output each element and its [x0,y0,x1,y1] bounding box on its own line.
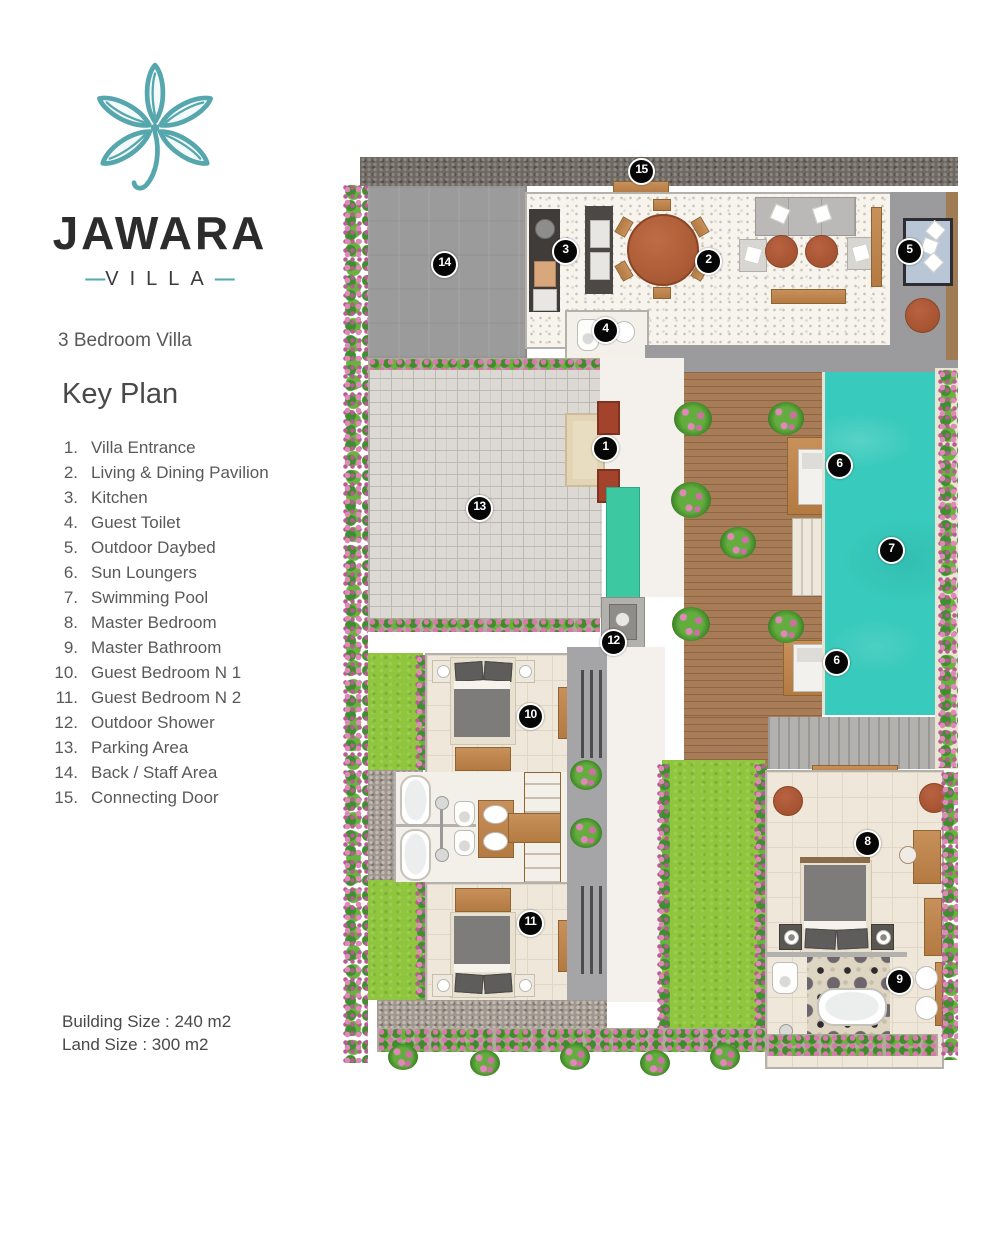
flower-bush [640,1050,670,1076]
washbasin [483,832,508,851]
pool-steps [792,518,822,596]
kitchen-counter [529,209,560,312]
bathtub [400,829,431,881]
master-bed [800,860,872,954]
nightstand [432,974,453,997]
guest-bedroom-2 [425,882,571,1004]
bed [450,912,516,998]
swimming-pool [822,372,940,715]
master-bathtub [817,988,887,1026]
lamp-icon [437,665,450,678]
master-suite [765,770,944,1069]
bed-duvet [804,865,866,921]
dining-chair [653,199,671,211]
nightstand [514,660,535,683]
round-table [773,786,803,816]
bed-duvet [454,689,510,737]
flower-bush [768,402,804,435]
parking-top-hedge [368,358,600,370]
bed-pillow [454,973,483,994]
shower-head-icon [435,848,449,862]
shower-head-icon [615,612,630,627]
nightstand [871,924,894,950]
bed [450,657,516,745]
sofa [755,197,856,236]
privacy-screen [581,886,603,974]
bed-sheet [454,964,510,972]
pergola-walkway [768,717,940,769]
coffee-table [805,235,838,268]
cutting-board [534,261,556,287]
bed-foot-rail [800,857,870,863]
flower-bush [710,1044,740,1070]
armchair-pillow [851,243,871,263]
lawn-border [656,762,670,1038]
flower-bush [570,760,602,790]
flower-bush [470,1050,500,1076]
privacy-screen [581,670,603,758]
staff-area [368,186,527,358]
lamp-icon [519,979,532,992]
water-feature [606,487,640,599]
flower-bush [674,402,712,436]
toilet [577,319,599,351]
flower-bush [671,482,711,518]
pool-garden-border [937,368,958,768]
floor-plan: 1234566789101112131415 [0,0,998,1250]
armchair-pillow [743,245,763,265]
flower-bush [570,818,602,848]
daybed-terrace [890,192,958,360]
right-garden-border [940,770,958,1060]
guest-toilet-room [565,310,649,362]
kitchen-sink [533,289,557,311]
bed-pillow [483,661,512,682]
guest-bedroom-1 [425,653,571,776]
dining-table [627,214,699,286]
armchair [739,239,767,272]
desk [913,830,941,884]
nightstand [514,974,535,997]
desk-chair [899,846,917,864]
washbasin [483,805,508,824]
central-lawn [662,760,765,1040]
sofa-pillow [812,204,832,224]
dining-chair [653,287,671,299]
nightstand [779,924,802,950]
toilet [772,962,798,994]
flower-bush [768,610,804,643]
island-panel [590,220,610,248]
flower-bush [672,607,710,641]
side-table [905,298,940,333]
entrance-gate-post [597,401,620,435]
bench [771,289,846,304]
outdoor-daybed [903,218,953,286]
bed-pillow [804,928,836,950]
parking-area [368,370,602,618]
sofa-pillow [769,203,790,224]
flower-bush [720,527,756,559]
bed-bench [455,747,511,771]
bed-sheet [454,681,510,689]
washbasin [915,996,938,1020]
bed-bench [455,888,511,912]
bed-pillow [454,661,483,682]
lamp-icon [519,665,532,678]
shower-head-icon [435,796,449,810]
flower-bush [388,1044,418,1070]
guest-bathrooms [394,772,569,882]
coffee-table [765,235,798,268]
pavilion-door [871,207,882,287]
washbasin [915,966,938,990]
bed-pillow [836,928,868,950]
outdoor-shower [601,597,645,649]
toilet [454,830,475,856]
toilet [454,801,475,827]
washbasin [613,321,635,343]
bed-duvet [454,916,510,964]
lamp-icon [437,979,450,992]
lamp-icon [876,930,891,945]
parking-bottom-hedge [368,618,600,632]
wardrobe [508,813,561,843]
bathtub [400,775,431,827]
kitchen-island [585,206,613,294]
left-garden-border [342,183,368,1063]
daybed-pillow [923,252,944,273]
bed-pillow [483,973,512,994]
master-bottom-hedge [767,1034,938,1056]
lamp-icon [784,930,799,945]
stove-icon [535,219,555,239]
flower-bush [560,1044,590,1070]
island-panel [590,252,610,280]
